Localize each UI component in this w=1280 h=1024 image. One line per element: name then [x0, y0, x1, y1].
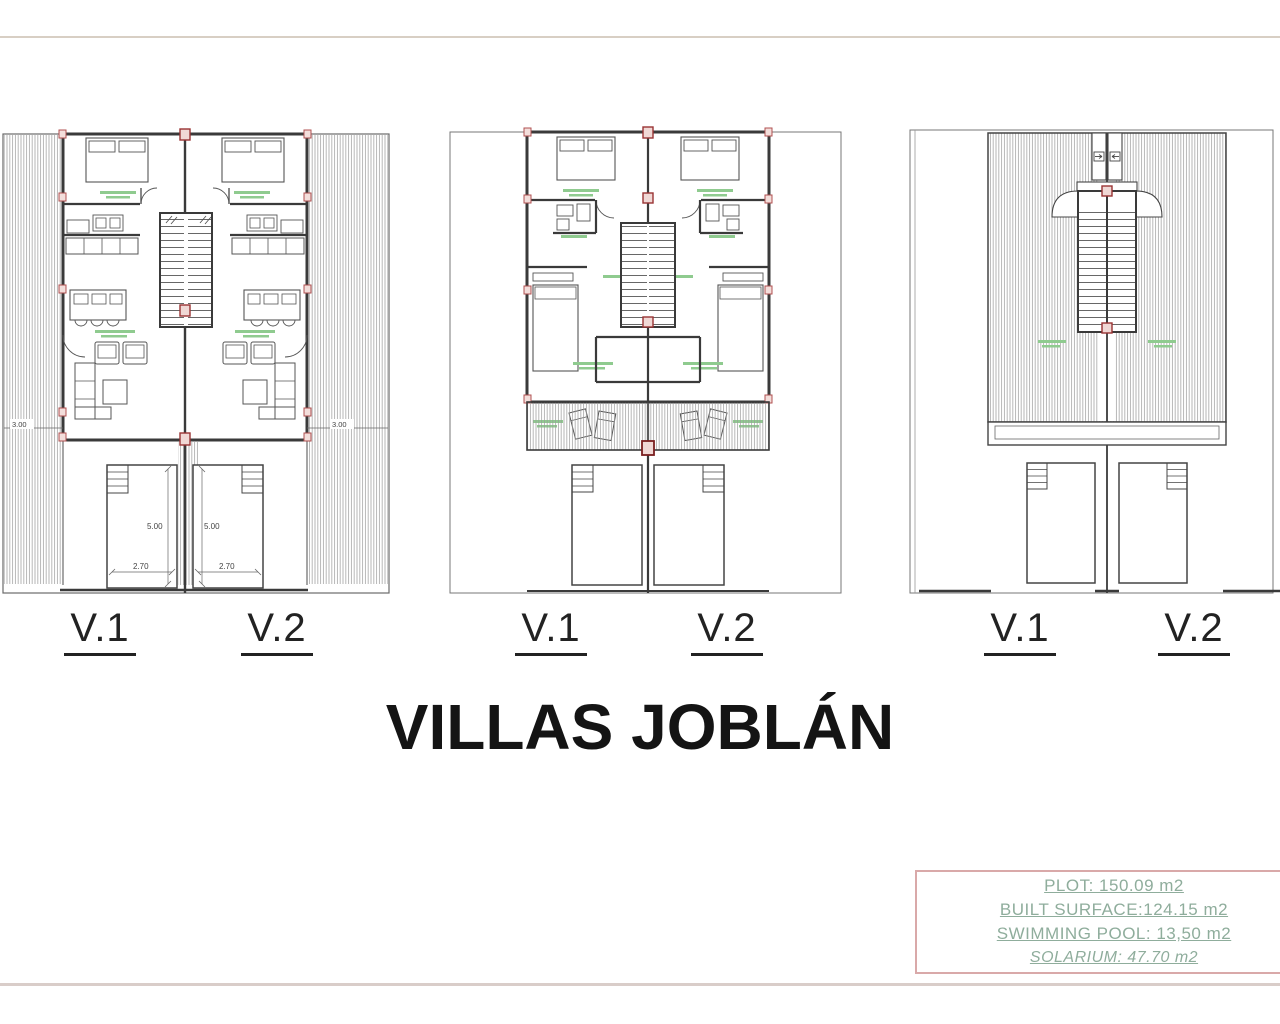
swimming-pool: [1027, 463, 1095, 583]
dim-pool-length-v2: 5.00: [204, 522, 220, 531]
info-box: PLOT: 150.09 m2 BUILT SURFACE:124.15 m2 …: [915, 870, 1280, 974]
wall-connector: [1102, 323, 1112, 333]
staircase: [621, 223, 675, 327]
roof-solarium-plan: [905, 125, 1280, 600]
dim-pool-length-v1: 5.00: [147, 522, 163, 531]
sheet-bottom-border: [0, 983, 1280, 986]
villa1-label-first: V.1: [506, 606, 596, 658]
wall-connector: [180, 305, 190, 316]
dim-pool-width-v2: 2.70: [219, 562, 235, 571]
villa2-label-roof: V.2: [1149, 606, 1239, 658]
info-solarium: SOLARIUM: 47.70 m2: [917, 946, 1280, 970]
left-yard-hatch: [4, 135, 63, 584]
wall-connector: [180, 129, 190, 140]
first-floor-plan: [445, 125, 850, 600]
dim-side-left: 3.00: [12, 420, 27, 429]
parapet: [988, 422, 1226, 445]
sheet-top-border: [0, 36, 1280, 38]
info-plot: PLOT: 150.09 m2: [917, 874, 1280, 898]
villa1-label-roof: V.1: [975, 606, 1065, 658]
project-title: VILLAS JOBLÁN: [0, 690, 1280, 764]
ground-floor-plan: 3.00 3.00 5.00 2.70 5.00 2.70: [0, 125, 395, 600]
info-built-surface: BUILT SURFACE:124.15 m2: [917, 898, 1280, 922]
wall-connector: [180, 433, 190, 445]
wall-connector: [643, 127, 653, 138]
info-swimming-pool: SWIMMING POOL: 13,50 m2: [917, 922, 1280, 946]
swimming-pool: [572, 465, 642, 585]
wall-connector: [643, 317, 653, 327]
wall-connector: [643, 193, 653, 203]
right-yard-hatch: [309, 135, 388, 584]
dim-side-right: 3.00: [332, 420, 347, 429]
dim-pool-width-v1: 2.70: [133, 562, 149, 571]
staircase: [1078, 191, 1136, 332]
villa2-label-first: V.2: [682, 606, 772, 658]
villa1-label-ground: V.1: [55, 606, 145, 658]
wall-connector: [642, 441, 654, 455]
wall-connector: [1102, 186, 1112, 196]
villa2-label-ground: V.2: [232, 606, 322, 658]
